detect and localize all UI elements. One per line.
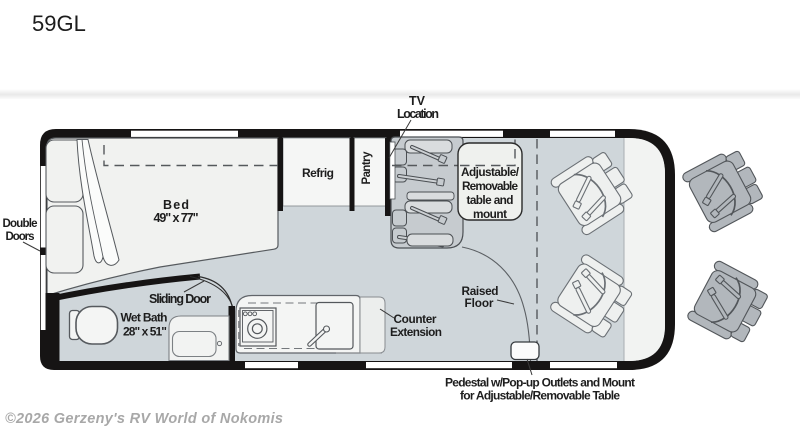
- svg-text:Double: Double: [3, 218, 38, 230]
- svg-text:Adjustable/: Adjustable/: [461, 165, 520, 179]
- svg-text:Counter: Counter: [394, 312, 437, 326]
- svg-text:Bed: Bed: [163, 198, 189, 212]
- svg-text:Extension: Extension: [390, 325, 442, 339]
- svg-text:Removable: Removable: [462, 179, 518, 193]
- svg-text:©2026 Gerzeny's RV World of No: ©2026 Gerzeny's RV World of Nokomis: [5, 411, 283, 427]
- svg-text:Doors: Doors: [6, 231, 35, 243]
- svg-text:Location: Location: [397, 107, 439, 121]
- svg-text:Sliding Door: Sliding Door: [149, 292, 211, 306]
- svg-text:Wet Bath: Wet Bath: [121, 311, 168, 325]
- svg-text:Pedestal w/Pop-up Outlets and: Pedestal w/Pop-up Outlets and Mount: [445, 376, 635, 390]
- svg-text:table and: table and: [467, 193, 514, 207]
- svg-text:59GL: 59GL: [32, 11, 86, 36]
- svg-text:for Adjustable/Removable Table: for Adjustable/Removable Table: [460, 389, 620, 403]
- svg-text:Floor: Floor: [465, 296, 494, 310]
- svg-text:49" x 77": 49" x 77": [154, 211, 199, 225]
- svg-text:mount: mount: [473, 207, 507, 221]
- svg-text:TV: TV: [409, 94, 426, 108]
- svg-text:Pantry: Pantry: [361, 151, 373, 185]
- svg-text:Refrig: Refrig: [302, 166, 334, 180]
- svg-text:28" x 51": 28" x 51": [123, 325, 167, 339]
